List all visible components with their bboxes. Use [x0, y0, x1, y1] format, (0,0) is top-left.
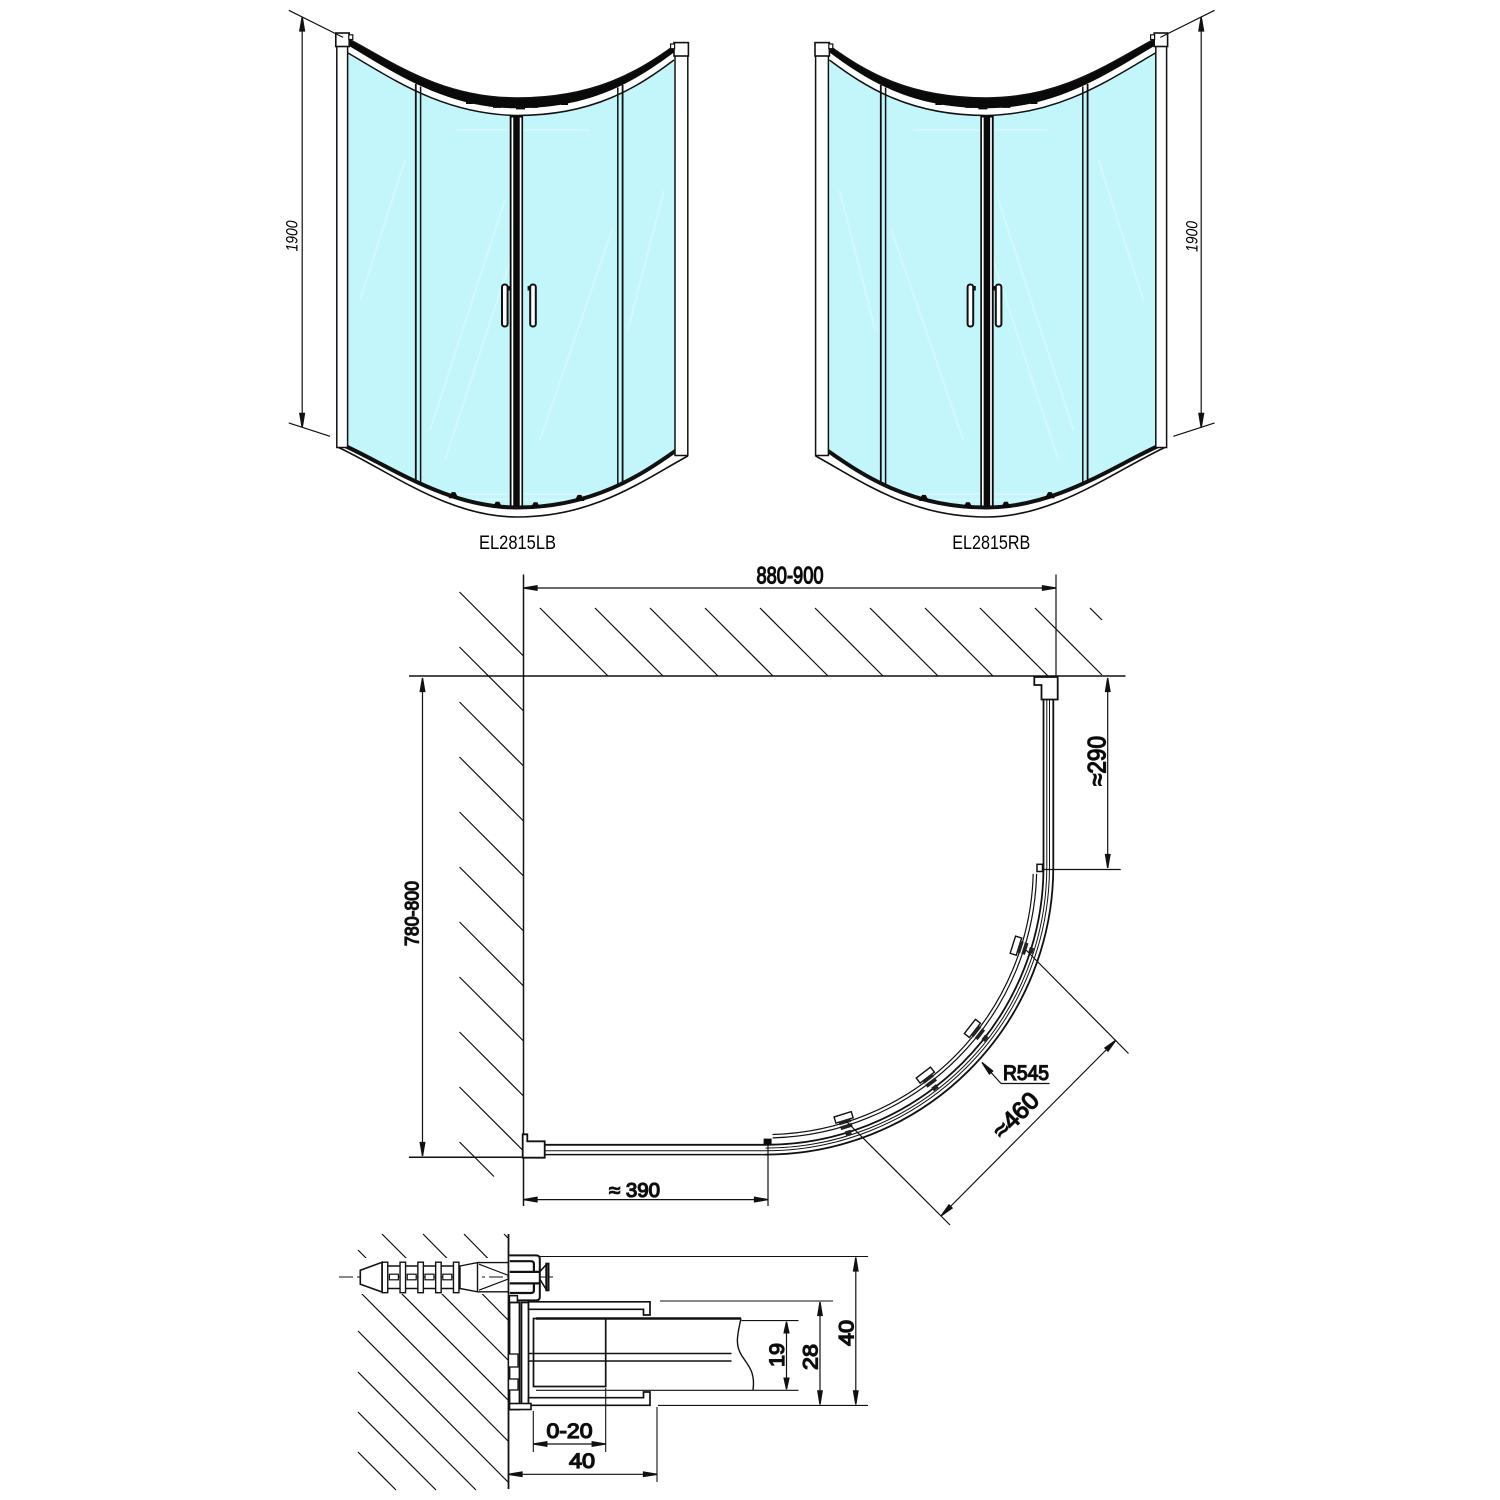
svg-text:1900: 1900 — [1182, 221, 1201, 252]
svg-text:R545: R545 — [1003, 1062, 1049, 1085]
svg-text:≈290: ≈290 — [1083, 736, 1111, 786]
svg-text:19: 19 — [766, 1343, 789, 1367]
svg-text:40: 40 — [569, 1450, 595, 1473]
svg-text:28: 28 — [800, 1344, 823, 1370]
svg-text:EL2815LB: EL2815LB — [479, 533, 556, 554]
svg-text:780-800: 780-800 — [403, 881, 424, 946]
svg-text:EL2815RB: EL2815RB — [952, 533, 1030, 554]
svg-text:1900: 1900 — [283, 220, 302, 251]
svg-text:0-20: 0-20 — [547, 1420, 593, 1443]
svg-text:880-900: 880-900 — [757, 563, 824, 590]
svg-text:40: 40 — [836, 1320, 859, 1346]
svg-text:≈ 390: ≈ 390 — [609, 1180, 660, 1202]
